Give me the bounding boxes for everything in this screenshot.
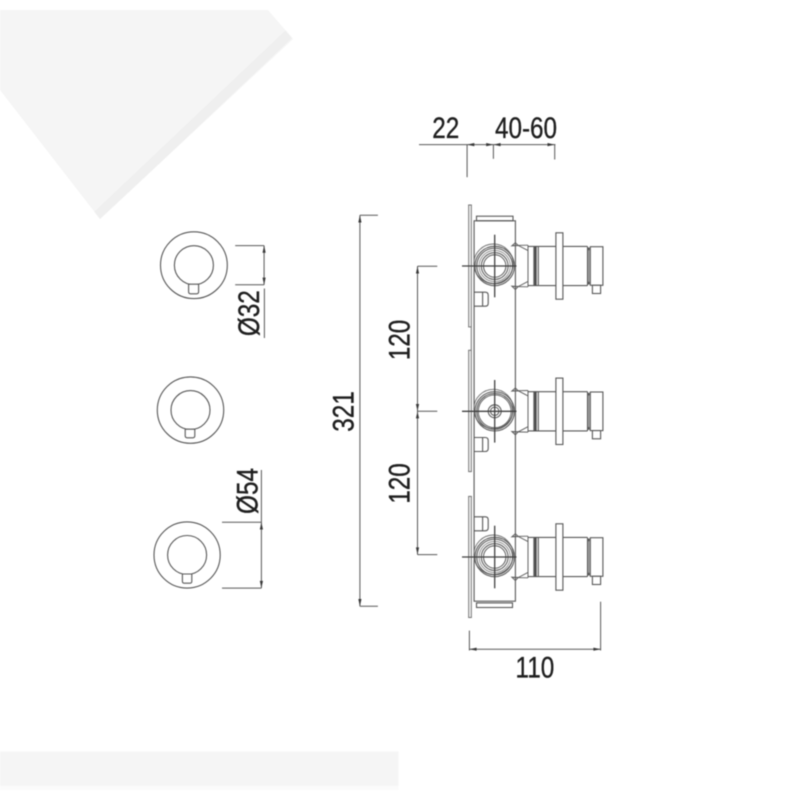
svg-text:22: 22 [432, 110, 459, 144]
svg-text:Ø32: Ø32 [232, 290, 266, 336]
svg-text:120: 120 [382, 320, 416, 361]
svg-text:120: 120 [382, 463, 416, 504]
svg-text:110: 110 [516, 650, 555, 684]
svg-text:321: 321 [326, 391, 360, 432]
svg-text:40-60: 40-60 [495, 110, 557, 144]
svg-text:Ø54: Ø54 [230, 468, 264, 514]
